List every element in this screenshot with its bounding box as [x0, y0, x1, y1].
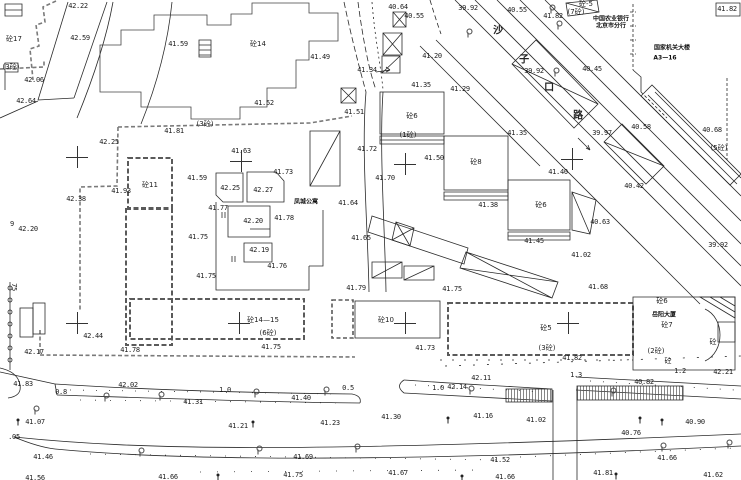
elevation-label: 40.58 — [631, 123, 651, 131]
elevation-label: 42.19 — [249, 246, 269, 254]
elevation-label: 42.25 — [99, 138, 119, 146]
elevation-label: 41.78 — [274, 214, 294, 222]
tree-icon — [660, 443, 665, 452]
elevation-label: 42.20 — [18, 225, 38, 233]
elevation-label: 41.76 — [267, 262, 287, 270]
dimension-label: 1.0 — [219, 386, 231, 394]
elevation-label: 41.56 — [25, 474, 45, 480]
elevation-label: 41.75 — [283, 471, 303, 479]
elevation-label: 42.02 — [118, 381, 138, 389]
building-label: 砼10 — [378, 315, 394, 325]
survey-cross-icon — [561, 148, 583, 170]
elevation-label: 41.16 — [473, 412, 493, 420]
elevation-label: 42.27 — [253, 186, 273, 194]
elevation-label: 41.40 — [291, 394, 311, 402]
elevation-label: 41.66 — [158, 473, 178, 480]
street-name-char: 路 — [573, 107, 583, 122]
elevation-label: 41.62 — [703, 471, 723, 479]
place-name-label: 北京市分行 — [596, 21, 626, 30]
elevation-label: 41.83 — [13, 380, 33, 388]
elevation-label: 41.69 — [293, 453, 313, 461]
building-label: (3砼) — [197, 119, 214, 129]
elevation-label: 41.66 — [495, 473, 515, 480]
utility-pole-icon — [252, 421, 255, 428]
label-layer: 42.2240.6440.5539.9240.5541.82砼-5(7砼)中国农… — [0, 0, 741, 480]
elevation-label: 41.82 — [717, 5, 737, 13]
street-name-char: 子 — [519, 51, 529, 66]
elevation-label: 41.35 — [507, 129, 527, 137]
elevation-label: 41.93 — [111, 187, 131, 195]
elevation-label: 41.52 — [490, 456, 510, 464]
elevation-label: 41.34 — [357, 66, 377, 74]
tree-icon — [556, 21, 561, 30]
building-label: (1砼) — [400, 130, 417, 140]
building-label: 砼 — [710, 337, 717, 347]
elevation-label: 41.35 — [411, 81, 431, 89]
dimension-label: 1.2 — [674, 367, 686, 375]
place-name-label: 国家机关大楼 — [654, 43, 690, 52]
survey-map: 42.2240.6440.5539.9240.5541.82砼-5(7砼)中国农… — [0, 0, 741, 480]
utility-pole-icon — [461, 475, 464, 480]
elevation-label: 39.92 — [458, 4, 478, 12]
elevation-label: 41.75 — [188, 233, 208, 241]
survey-cross-icon — [230, 150, 252, 172]
building-label: 砼14—15 — [247, 315, 279, 325]
building-label: 砼5 — [540, 323, 551, 333]
survey-cross-icon — [394, 153, 416, 175]
building-label: 砼14 — [250, 39, 266, 49]
survey-cross-icon — [228, 312, 250, 334]
building-label: 砼6 — [535, 200, 546, 210]
elevation-label: 42.22 — [68, 2, 88, 10]
elevation-label: 40.90 — [685, 418, 705, 426]
building-label: (7砼) — [568, 7, 585, 17]
elevation-label: 41.21 — [228, 422, 248, 430]
utility-pole-icon — [447, 417, 450, 424]
elevation-label: 41.75 — [196, 272, 216, 280]
dimension-label: 0.8 — [55, 388, 67, 396]
elevation-label: 42.17 — [24, 348, 44, 356]
tree-icon — [466, 29, 471, 38]
elevation-label: 42.64 — [16, 97, 36, 105]
elevation-label: 41.75 — [442, 285, 462, 293]
place-name-label: A3—16 — [653, 55, 676, 62]
elevation-label: 42.21 — [713, 368, 733, 376]
elevation-label: 41.68 — [588, 283, 608, 291]
tree-icon — [256, 446, 261, 455]
elevation-label: .05 — [8, 433, 20, 441]
elevation-label: 41.70 — [375, 174, 395, 182]
elevation-label: 41.07 — [25, 418, 45, 426]
elevation-label: 40.55 — [404, 12, 424, 20]
elevation-label: 41.67 — [388, 469, 408, 477]
elevation-label: 40.68 — [702, 126, 722, 134]
elevation-label: 41.66 — [657, 454, 677, 462]
street-name-char: 口 — [544, 79, 554, 94]
tree-icon — [323, 387, 328, 396]
elevation-label: 40.42 — [624, 182, 644, 190]
elevation-label: 41.72 — [357, 145, 377, 153]
tree-icon — [253, 389, 258, 398]
elevation-label: 41.73 — [273, 168, 293, 176]
elevation-label: 40.45 — [582, 65, 602, 73]
elevation-label: 41.75 — [261, 343, 281, 351]
survey-cross-icon — [557, 312, 579, 334]
utility-pole-icon — [661, 419, 664, 426]
utility-pole-icon — [217, 474, 220, 480]
elevation-label: 41.38 — [478, 201, 498, 209]
elevation-label: 40.76 — [621, 429, 641, 437]
place-name-label: 岳阳大厦 — [652, 310, 676, 319]
tree-icon — [610, 388, 615, 397]
elevation-label: 41.59 — [168, 40, 188, 48]
building-label: (3砼) — [539, 343, 556, 353]
elevation-label: 41.65 — [351, 234, 371, 242]
elevation-label: 41.82 — [562, 354, 582, 362]
tree-icon — [158, 392, 163, 401]
building-label: (2砼) — [648, 346, 665, 356]
tree-icon — [468, 386, 473, 395]
elevation-label: 42.06 — [24, 76, 44, 84]
tree-icon — [549, 5, 554, 14]
elevation-label: 41.30 — [381, 413, 401, 421]
tree-icon — [103, 393, 108, 402]
building-label: 砼6 — [656, 296, 667, 306]
elevation-label: 41.51 — [344, 108, 364, 116]
elevation-label: 75 — [10, 283, 18, 291]
building-label: (5砼) — [711, 143, 728, 153]
tree-icon — [138, 448, 143, 457]
elevation-label: 41.45 — [524, 237, 544, 245]
elevation-label: 39.92 — [524, 67, 544, 75]
elevation-label: 41.77 — [208, 204, 228, 212]
survey-cross-icon — [394, 312, 416, 334]
building-label: 砼11 — [142, 180, 158, 190]
survey-cross-icon — [66, 312, 88, 334]
elevation-label: 41.31 — [183, 398, 203, 406]
elevation-label: 42.20 — [243, 217, 263, 225]
elevation-label: 42.38 — [66, 195, 86, 203]
elevation-label: 40.64 — [388, 3, 408, 11]
elevation-label: 40.63 — [590, 218, 610, 226]
elevation-label: 9 — [10, 220, 14, 228]
elevation-label: 41.81 — [164, 127, 184, 135]
dimension-label: 1.0 — [432, 384, 444, 392]
elevation-label: 39.97 — [592, 129, 612, 137]
elevation-label: 42.25 — [220, 184, 240, 192]
utility-pole-icon — [639, 417, 642, 424]
building-label: 砼8 — [470, 157, 481, 167]
elevation-label: 41.64 — [338, 199, 358, 207]
elevation-label: 41.78 — [120, 346, 140, 354]
elevation-label: 41.02 — [571, 251, 591, 259]
elevation-label: 42.11 — [471, 374, 491, 382]
building-label: (3砼) — [3, 62, 20, 72]
survey-cross-icon — [66, 146, 88, 168]
building-label: 砼6 — [406, 111, 417, 121]
elevation-label: 39.92 — [708, 241, 728, 249]
building-label: 砼7 — [661, 320, 672, 330]
building-label: 砼 — [665, 356, 672, 366]
elevation-label: 40.55 — [507, 6, 527, 14]
elevation-label: 41.52 — [254, 99, 274, 107]
elevation-label: 41.46 — [33, 453, 53, 461]
utility-pole-icon — [615, 473, 618, 480]
street-name-char: 沙 — [493, 22, 503, 37]
elevation-label: 41.20 — [422, 52, 442, 60]
elevation-label: 41.81 — [593, 469, 613, 477]
elevation-label: 41.23 — [320, 419, 340, 427]
elevation-label: 41.59 — [187, 174, 207, 182]
building-label: (6砼) — [260, 328, 277, 338]
place-name-label: 凤城公寓 — [294, 197, 318, 206]
elevation-label: 41.02 — [526, 416, 546, 424]
utility-pole-icon — [17, 419, 20, 426]
building-label: 砼17 — [6, 34, 22, 44]
elevation-label: 40.82 — [634, 378, 654, 386]
elevation-label: 42.59 — [70, 34, 90, 42]
elevation-label: 41.73 — [415, 344, 435, 352]
tree-icon — [553, 68, 558, 77]
tree-icon — [33, 406, 38, 415]
elevation-label: 41.79 — [346, 284, 366, 292]
elevation-label: 41.29 — [450, 85, 470, 93]
elevation-label: 41.50 — [424, 154, 444, 162]
elevation-label: 42.14 — [447, 383, 467, 391]
tree-icon — [354, 444, 359, 453]
dimension-label: 1.3 — [570, 371, 582, 379]
tree-icon — [726, 440, 731, 449]
elevation-label: 41.49 — [310, 53, 330, 61]
dimension-label: 0.5 — [342, 384, 354, 392]
